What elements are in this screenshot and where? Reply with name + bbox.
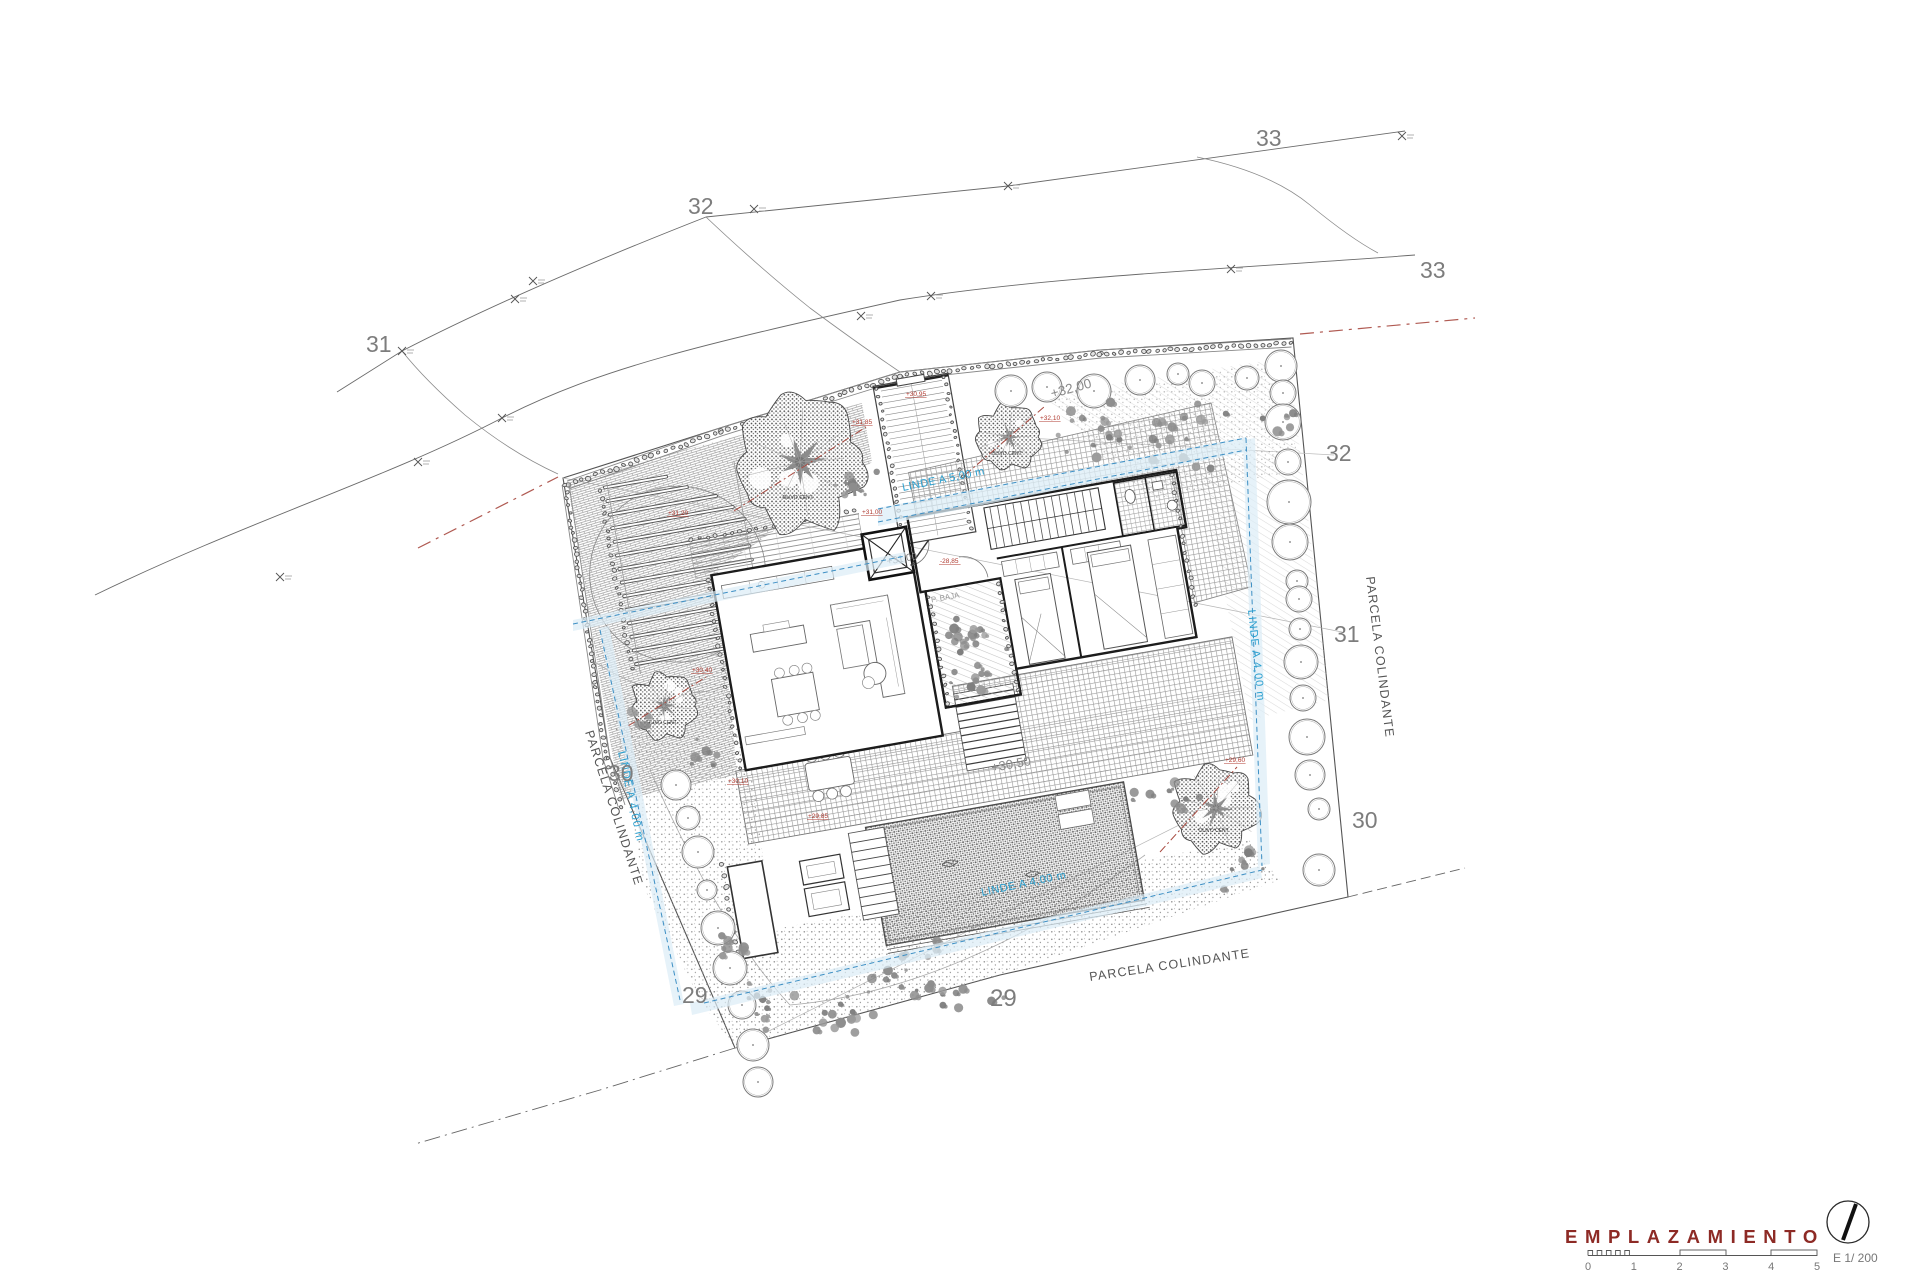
svg-text:31: 31: [1334, 621, 1360, 647]
svg-text:32: 32: [1326, 440, 1352, 466]
svg-text:3: 3: [1722, 1261, 1728, 1273]
svg-text:E 1/ 200: E 1/ 200: [1833, 1251, 1878, 1265]
svg-text:31: 31: [366, 331, 392, 357]
svg-text:33: 33: [1256, 125, 1282, 151]
svg-text:4: 4: [1768, 1261, 1774, 1273]
svg-text:+29,60: +29,60: [1225, 757, 1245, 764]
svg-text:32: 32: [688, 193, 714, 219]
svg-text:+29,85: +29,85: [808, 813, 828, 820]
svg-text:OLIVO CENT.: OLIVO CENT.: [1198, 828, 1229, 834]
svg-text:+31,00: +31,00: [862, 509, 882, 516]
svg-text:-28,85: -28,85: [940, 558, 959, 565]
svg-text:+32,10: +32,10: [1040, 415, 1060, 422]
svg-text:OLIVO CENT.: OLIVO CENT.: [646, 720, 677, 726]
svg-text:EMPLAZAMIENTO: EMPLAZAMIENTO: [1565, 1226, 1825, 1247]
svg-text:1: 1: [1631, 1261, 1637, 1273]
svg-text:+31,20: +31,20: [668, 510, 688, 517]
svg-text:5: 5: [1814, 1261, 1820, 1273]
svg-text:+30,40: +30,40: [692, 667, 712, 674]
svg-text:2: 2: [1677, 1261, 1683, 1273]
svg-text:29: 29: [682, 982, 708, 1008]
svg-text:+31,85: +31,85: [852, 419, 872, 426]
svg-text:0: 0: [1585, 1261, 1591, 1273]
svg-text:30: 30: [1352, 807, 1378, 833]
svg-text:+30,10: +30,10: [728, 778, 748, 785]
svg-text:OLIVO CENT.: OLIVO CENT.: [782, 495, 813, 501]
svg-text:29: 29: [990, 985, 1017, 1012]
svg-text:+30,95: +30,95: [906, 391, 926, 398]
svg-text:OLIVO CENT.: OLIVO CENT.: [991, 451, 1022, 457]
svg-text:33: 33: [1420, 257, 1446, 283]
